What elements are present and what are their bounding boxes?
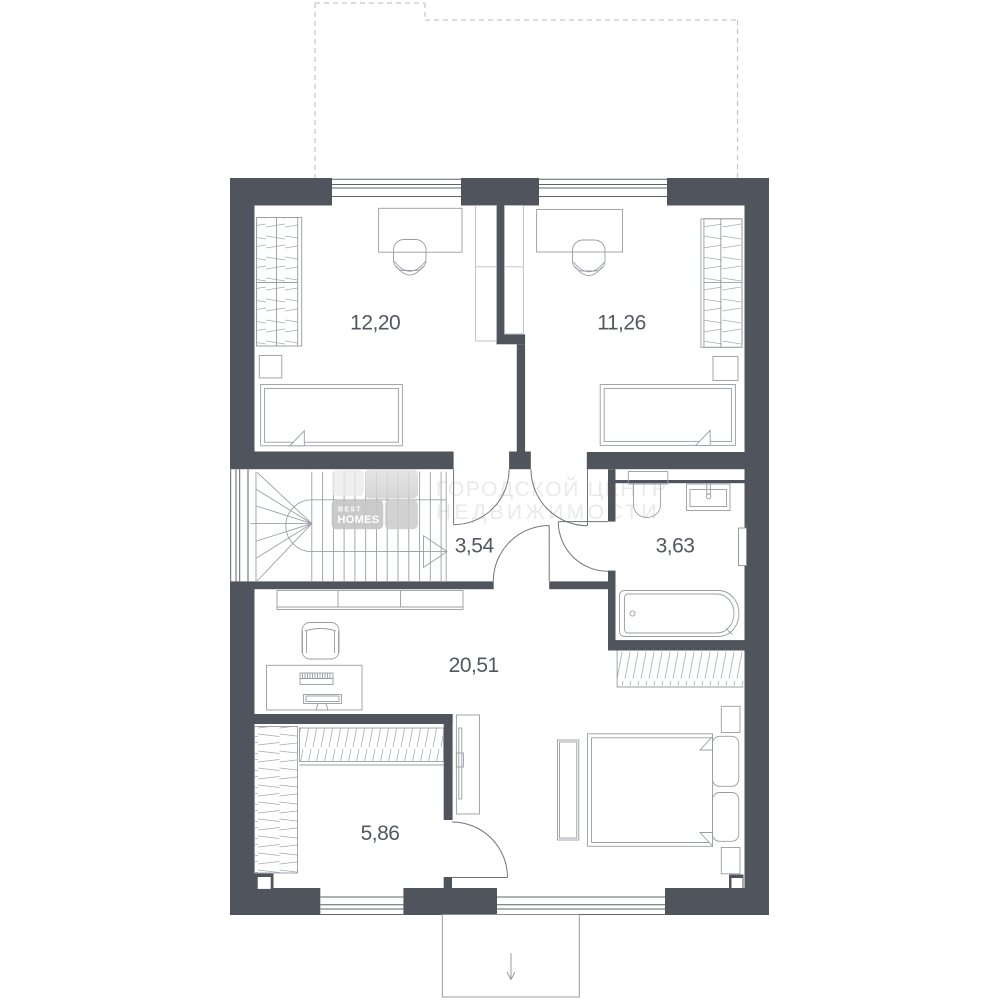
svg-text:20,51: 20,51: [449, 654, 499, 677]
svg-text:11,26: 11,26: [597, 312, 646, 335]
svg-text:3,63: 3,63: [656, 535, 695, 558]
svg-text:5,86: 5,86: [361, 822, 400, 845]
svg-text:12,20: 12,20: [350, 312, 400, 335]
svg-text:HOMES: HOMES: [338, 514, 380, 526]
svg-text:НЕДВИЖИМОСТИ: НЕДВИЖИМОСТИ: [436, 501, 660, 524]
svg-text:BEST: BEST: [338, 507, 362, 514]
svg-text:3,54: 3,54: [455, 535, 495, 558]
